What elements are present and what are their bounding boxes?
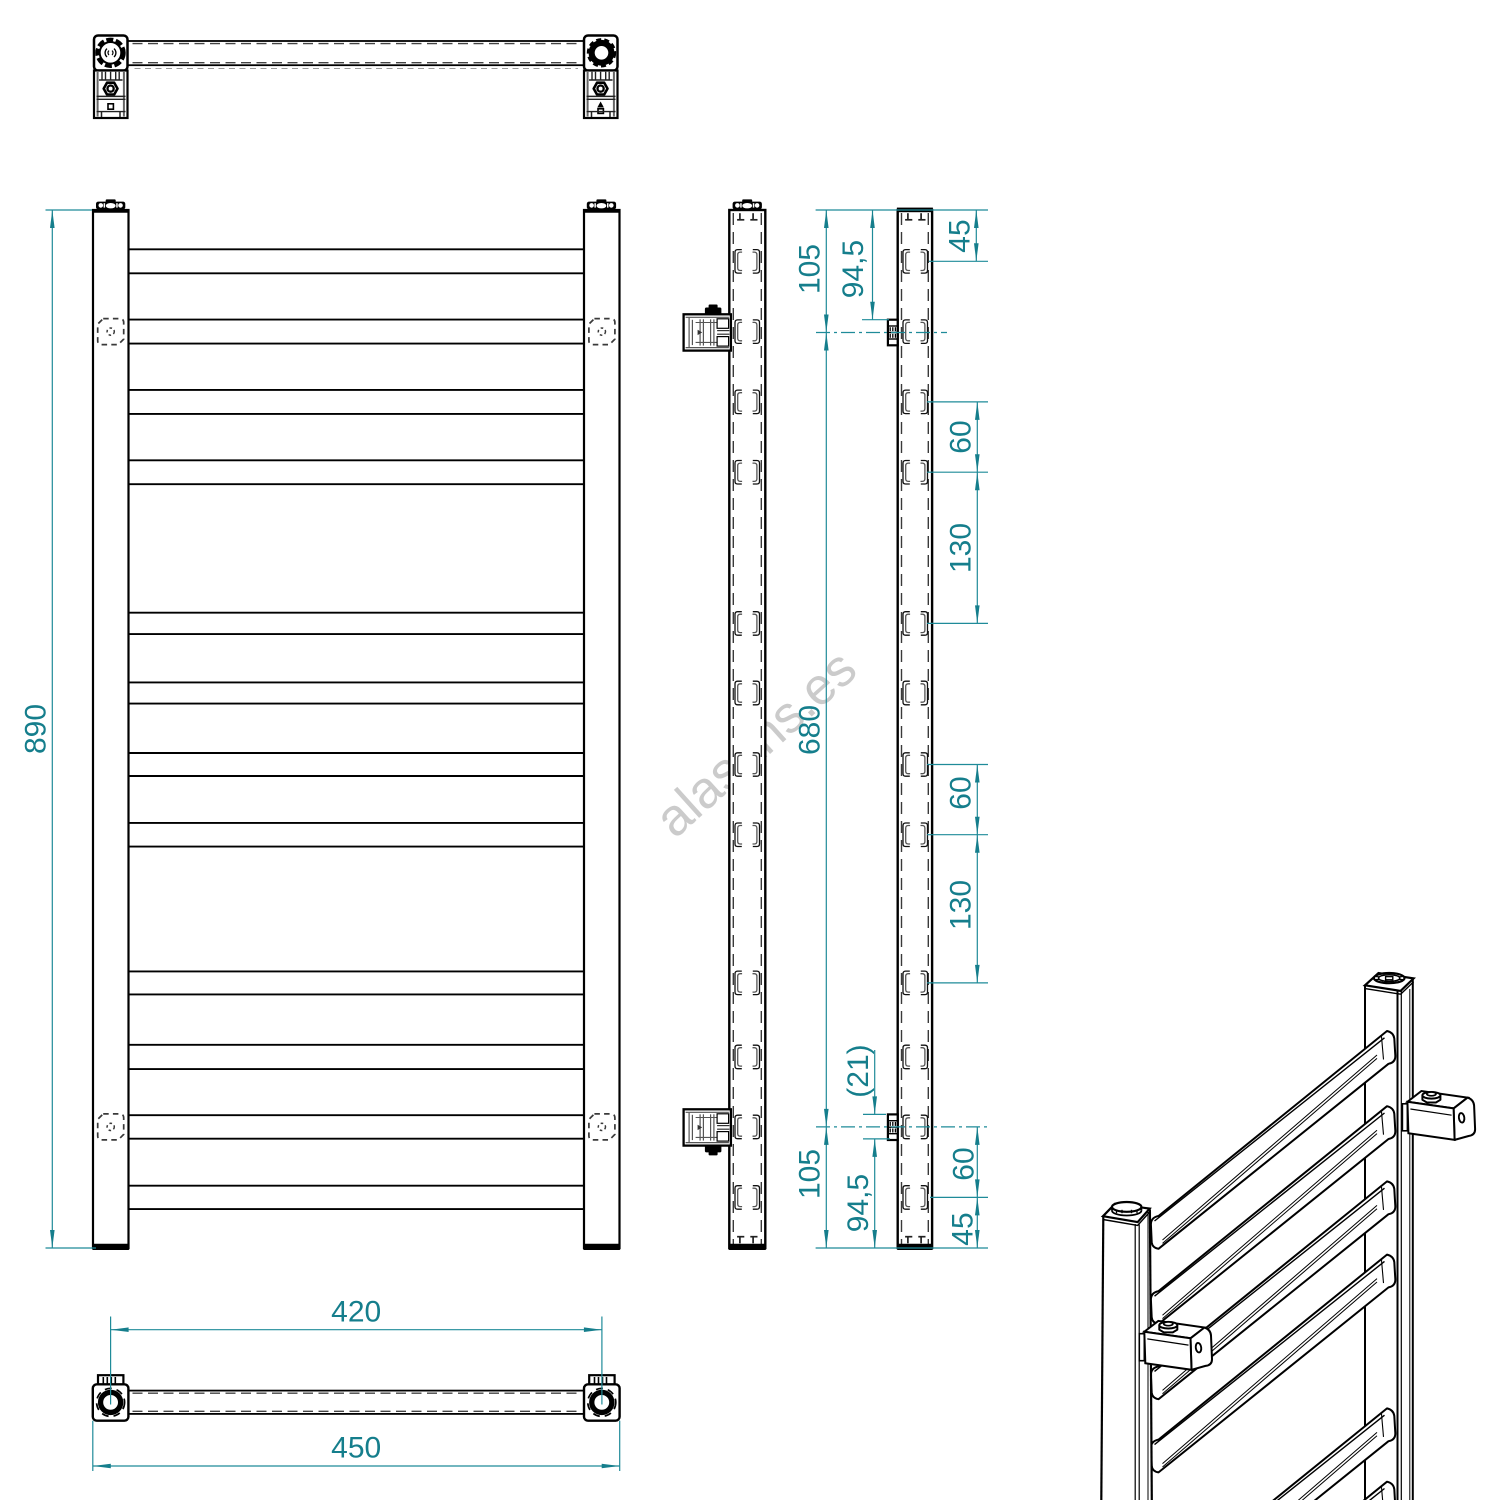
svg-text:420: 420 bbox=[331, 1295, 381, 1328]
svg-text:60: 60 bbox=[947, 1147, 980, 1180]
svg-text:45: 45 bbox=[946, 1212, 979, 1245]
svg-text:(21): (21) bbox=[842, 1044, 875, 1097]
svg-text:680: 680 bbox=[793, 705, 826, 755]
svg-text:890: 890 bbox=[19, 704, 52, 754]
svg-text:94,5: 94,5 bbox=[837, 240, 870, 298]
svg-text:130: 130 bbox=[945, 523, 978, 573]
svg-text:94,5: 94,5 bbox=[842, 1174, 875, 1232]
svg-text:105: 105 bbox=[793, 244, 826, 294]
svg-text:60: 60 bbox=[945, 420, 978, 453]
svg-text:130: 130 bbox=[945, 880, 978, 930]
svg-text:450: 450 bbox=[331, 1432, 381, 1465]
svg-text:105: 105 bbox=[793, 1149, 826, 1199]
svg-text:60: 60 bbox=[945, 776, 978, 809]
svg-text:45: 45 bbox=[944, 219, 977, 252]
